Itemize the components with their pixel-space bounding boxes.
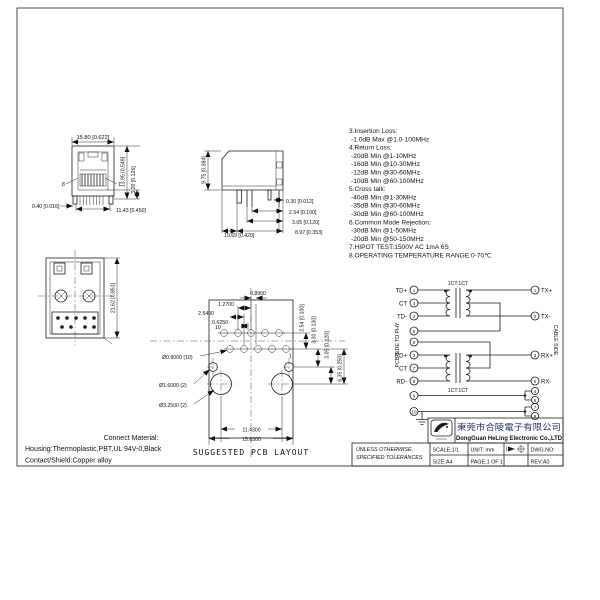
side-dim-4: 8.97 [0.353]: [295, 230, 323, 236]
transformer1-ratio: 1CT:1CT: [448, 281, 469, 287]
pcb-pin-label: CT: [399, 301, 407, 307]
pcb-pin-number: 1: [413, 288, 416, 293]
pcb-pin-number: 6: [413, 379, 416, 384]
pcb-dim-top2: 1.2700: [218, 302, 234, 308]
rev-value: REV:A0: [531, 460, 550, 466]
pcb-hole-small: Ø0.9000 (10): [162, 355, 193, 361]
engineering-drawing: 15.80 [0.622] 13.95 [0.549] 3.20 [0.126]…: [0, 0, 600, 600]
cable-pin-label: TX-: [541, 314, 551, 320]
note-line: -16dB Min @10-30MHz: [351, 161, 420, 168]
pcb-dim-bottom2: 15.6300: [242, 437, 261, 443]
cable-pin-number: 4: [534, 389, 537, 394]
pcb-dim-right2: 3.30 [0.130]: [312, 316, 318, 344]
note-line: -12dB Min @30-60MHz: [351, 170, 420, 177]
pcb-pin1-label: 1: [289, 354, 292, 360]
side-view: 9.75 [0.384] 0.30 [0.012] 2.54 [0.100] 3…: [202, 151, 323, 239]
projection-symbol: [507, 445, 526, 453]
pcb-pin-label: RD+: [395, 353, 408, 359]
cable-pin-number: 6: [534, 379, 537, 384]
pcb-pin-number: 3: [413, 353, 416, 358]
pcb-pin-label: TD+: [395, 288, 407, 294]
transformer2-ratio: 1CT:1CT: [448, 388, 469, 394]
sheet-cutoff-mask: [0, 467, 600, 600]
schematic: PCB SIDE TO PHY CABLE SIDE 1CT:1CT 1CT:1…: [395, 281, 558, 425]
pcb-pin-number: 9: [413, 393, 416, 398]
pcb-pin-label: TD-: [397, 314, 407, 320]
pcb-dim-top3: 2.5400: [198, 311, 214, 317]
pcb-pin-number: 7: [413, 366, 416, 371]
cable-pin-label: TX+: [541, 288, 553, 294]
schematic-right-side-label: CABLE SIDE: [552, 325, 558, 356]
materials-line1: Housing:Thermoplastic,PBT,UL 94V-0,Black: [25, 446, 162, 453]
cable-pin-label: RX-: [541, 379, 551, 385]
cable-side-pins: 1 TX+ 2 TX- 3 RX+ 6 RX- 4 5 7 8: [531, 286, 553, 420]
front-pin8-label: 8: [62, 182, 65, 188]
pcb-caption: SUGGESTED PCB LAYOUT: [193, 448, 309, 457]
note-line: 4.Return Loss:: [349, 145, 392, 152]
note-line: -10dB Min @60-100MHz: [351, 178, 424, 185]
pcb-dim-bottom1: 11.4300: [242, 428, 260, 434]
company-name-cn: 東莞市合陵電子有限公司: [457, 422, 561, 433]
front-dim-tail: 3.20 [0.126]: [131, 166, 137, 194]
bottom-dim-depth: 21.62 [0.851]: [111, 282, 117, 313]
pcb-dim-right1: 2.54 [0.100]: [300, 304, 306, 332]
cable-pin-number: 5: [534, 398, 537, 403]
front-view: 15.80 [0.622] 13.95 [0.549] 3.20 [0.126]…: [32, 135, 146, 214]
pcb-pin-label: RD-: [396, 379, 407, 385]
spec-notes: 3.Insertion Loss: -1.0dB Max @1.0-100MHz…: [349, 128, 492, 260]
side-dim-3: 3.05 [0.120]: [292, 220, 320, 226]
pcb-dim-top1: 0.8900: [250, 291, 266, 297]
side-dim-5: 10.69 [0.420]: [224, 233, 255, 239]
pcb-pin10-label: 10: [215, 325, 221, 331]
front-dim-height: 13.95 [0.549]: [121, 156, 127, 187]
note-line: -35dB Min @30-60MHz: [351, 203, 420, 210]
size-value: SIZE:A4: [433, 460, 453, 466]
unit-value: UNIT: mm: [471, 448, 495, 454]
side-dim-2: 2.54 [0.100]: [289, 210, 317, 216]
pcb-pin-number: 8: [413, 340, 416, 345]
cable-pin-number: 2: [534, 314, 537, 319]
note-line: 3.Insertion Loss:: [349, 128, 398, 135]
note-line: -40dB Min @1-30MHz: [351, 194, 416, 201]
materials-note: Connect Material: Housing:Thermoplastic,…: [25, 435, 162, 465]
company-logo: [431, 420, 452, 439]
sheet-frame: [17, 8, 563, 466]
note-line: 8.OPERATING TEMPERATURE RANGE:0-70℃: [349, 253, 492, 260]
pcb-dim-right4: 6.35 [0.250]: [338, 354, 344, 382]
pcb-pin-number: 5: [413, 329, 416, 334]
materials-line2: Contact/Shield:Copper alloy: [25, 458, 112, 465]
pcb-layout: 0.8900 1.2700 2.5400 0.6250 2.54 [0.100]…: [150, 288, 348, 458]
pcb-pin-label: CT: [399, 366, 407, 372]
drawing-sheet: 15.80 [0.622] 13.95 [0.549] 3.20 [0.126]…: [0, 0, 600, 600]
bottom-view: 21.62 [0.851]: [38, 250, 120, 346]
pcb-pin-number: 10: [411, 409, 417, 414]
tolerance-note-2: SPECIFIED TOLERANCES: [356, 455, 423, 461]
scale-value: SCALE:1/1: [433, 448, 460, 454]
note-line: -20dB Min @50-150MHz: [351, 236, 424, 243]
note-line: 6.Common Mode Rejection:: [349, 219, 431, 226]
page-value: PAGE:1 OF 1: [471, 460, 504, 466]
company-name-en: DongGuan HeLing Electronic Co.,LTD: [456, 435, 562, 442]
pcb-pin-number: 4: [413, 301, 416, 306]
pcb-dim-right3: 3.05 [0.120]: [325, 331, 331, 359]
cable-pin-number: 3: [534, 353, 537, 358]
title-block: 東莞市合陵電子有限公司 DongGuan HeLing Electronic C…: [352, 418, 563, 466]
note-line: -30dB Min @60-100MHz: [351, 211, 424, 218]
note-line: 7.HIPOT TEST:1500V AC 1mA 6S: [349, 244, 449, 251]
front-dim-span: 11.43 [0.450]: [116, 208, 146, 214]
materials-title: Connect Material:: [104, 435, 159, 442]
pcb-hole-big: Ø3.2500 (2): [159, 403, 187, 409]
dwg-no-label: DWG.NO:: [531, 448, 555, 454]
front-pin1-label: 1: [118, 182, 121, 188]
schematic-left-side-label: PCB SIDE TO PHY: [395, 322, 401, 367]
note-line: -20dB Min @1-10MHz: [351, 153, 416, 160]
front-dim-pin: 0.40 [0.016]: [32, 204, 60, 210]
tolerance-note-1: UNLESS OTHERWISE: [356, 447, 412, 453]
side-dim-1: 0.30 [0.012]: [286, 199, 314, 205]
note-line: 5.Cross talk:: [349, 186, 386, 193]
pcb-hole-mid: Ø1.6000 (2): [159, 383, 187, 389]
cable-pin-label: RX+: [541, 353, 553, 359]
front-dim-width: 15.80 [0.622]: [77, 135, 110, 141]
note-line: -1.0dB Max @1.0-100MHz: [351, 136, 429, 143]
note-line: -30dB Min @1-50MHz: [351, 228, 416, 235]
side-dim-height: 9.75 [0.384]: [202, 156, 208, 184]
cable-pin-number: 1: [534, 288, 537, 293]
cable-pin-number: 7: [534, 405, 537, 410]
pcb-pin-number: 2: [413, 314, 416, 319]
